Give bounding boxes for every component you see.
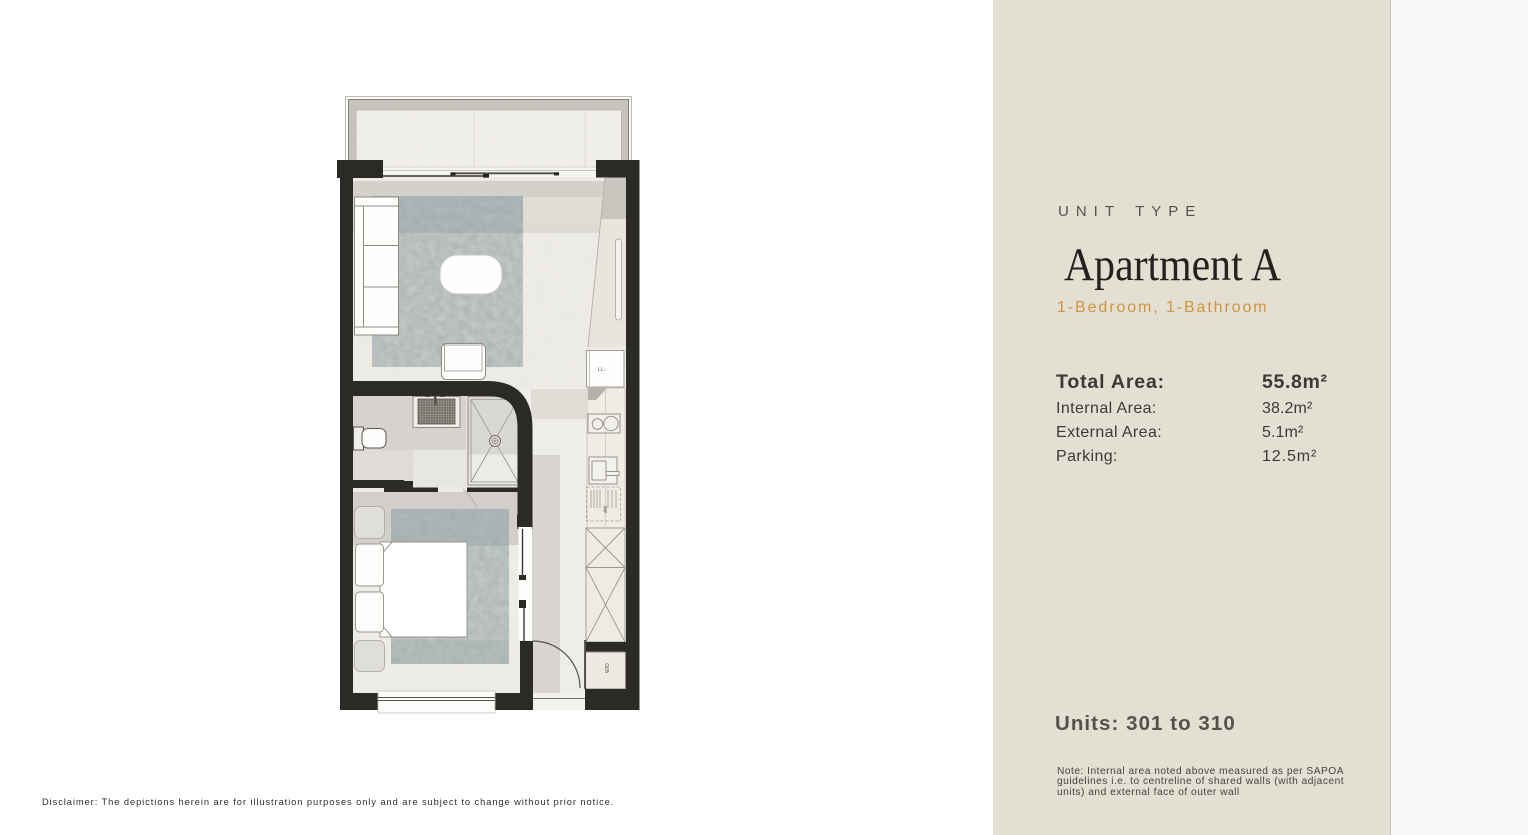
svg-text:DW: DW xyxy=(603,506,608,513)
svg-text:LL.: LL. xyxy=(598,367,606,373)
svg-text:W/D: W/D xyxy=(605,663,611,673)
